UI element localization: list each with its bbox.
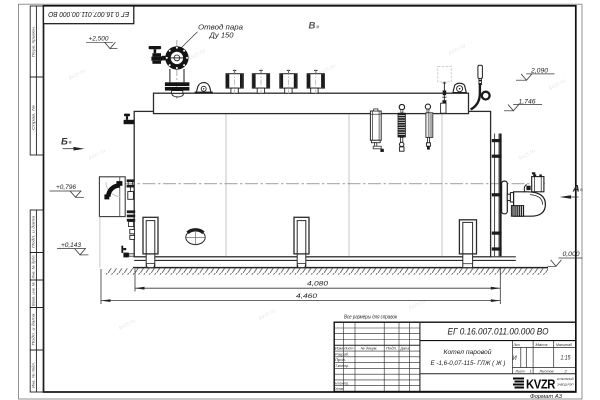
svg-text:Б: Б xyxy=(61,137,68,148)
svg-text:Справ. №: Справ. № xyxy=(31,105,35,130)
svg-text:КОТЕЛЬНЫЙ: КОТЕЛЬНЫЙ xyxy=(557,377,574,381)
svg-text:Лист: Лист xyxy=(343,346,354,350)
svg-text:Инв. № дубл.: Инв. № дубл. xyxy=(31,255,35,279)
svg-text:Лист: Лист xyxy=(515,369,525,374)
svg-text:1:15: 1:15 xyxy=(561,356,572,362)
svg-text:Подп.: Подп. xyxy=(386,346,397,350)
svg-text:Масса: Масса xyxy=(536,343,548,347)
svg-text:+2,500: +2,500 xyxy=(89,35,109,42)
svg-text:Утв.: Утв. xyxy=(335,386,344,391)
svg-text:Взам. инв. №: Взам. инв. № xyxy=(31,282,35,306)
svg-text:Подп. и дата: Подп. и дата xyxy=(31,314,35,346)
svg-text:4,460: 4,460 xyxy=(296,293,318,300)
svg-text:Лит.: Лит. xyxy=(513,343,521,347)
svg-text:А: А xyxy=(572,184,580,195)
svg-text:4,080: 4,080 xyxy=(307,281,329,288)
svg-text:1: 1 xyxy=(530,369,532,374)
svg-text:Изм: Изм xyxy=(335,346,344,350)
svg-text:Дата: Дата xyxy=(400,346,409,350)
svg-text:Т.контр.: Т.контр. xyxy=(335,363,349,368)
svg-text:Инв. № подл.: Инв. № подл. xyxy=(31,362,35,388)
svg-text:№ докум.: № докум. xyxy=(361,346,378,350)
svg-text:+0,796: +0,796 xyxy=(56,184,76,191)
svg-text:Все размеры для справок: Все размеры для справок xyxy=(344,315,397,321)
svg-text:Пров.: Пров. xyxy=(335,357,346,362)
svg-text:Формат А3: Формат А3 xyxy=(530,394,563,400)
svg-text:ЕГ 0.16.007.011.00.000 ВО: ЕГ 0.16.007.011.00.000 ВО xyxy=(48,10,129,19)
svg-text:Ду 150: Ду 150 xyxy=(209,31,235,40)
svg-text:Е -1,6-0,07-115- ГЛЖ ( Ж ): Е -1,6-0,07-115- ГЛЖ ( Ж ) xyxy=(431,361,506,367)
svg-text:Подп. и дата: Подп. и дата xyxy=(31,216,35,248)
svg-text:В: В xyxy=(309,21,316,32)
svg-text:Перв. примен.: Перв. примен. xyxy=(31,26,35,57)
svg-text:0,000: 0,000 xyxy=(563,251,580,258)
svg-text:Масштаб: Масштаб xyxy=(556,343,573,347)
svg-text:2,090: 2,090 xyxy=(530,67,549,74)
svg-text:Котел паровой: Котел паровой xyxy=(444,349,493,356)
svg-text:Н.контр.: Н.контр. xyxy=(335,380,349,385)
svg-text:ЗАВОД РЭП: ЗАВОД РЭП xyxy=(557,382,574,386)
svg-text:+0,143: +0,143 xyxy=(61,242,81,249)
svg-text:ЕГ 0.16.007.011.00.000 ВО: ЕГ 0.16.007.011.00.000 ВО xyxy=(448,326,549,336)
svg-text:Разраб.: Разраб. xyxy=(335,351,349,356)
svg-text:И: И xyxy=(512,355,517,362)
svg-text:Листов: Листов xyxy=(539,369,554,374)
svg-text:KVZR: KVZR xyxy=(526,376,556,391)
